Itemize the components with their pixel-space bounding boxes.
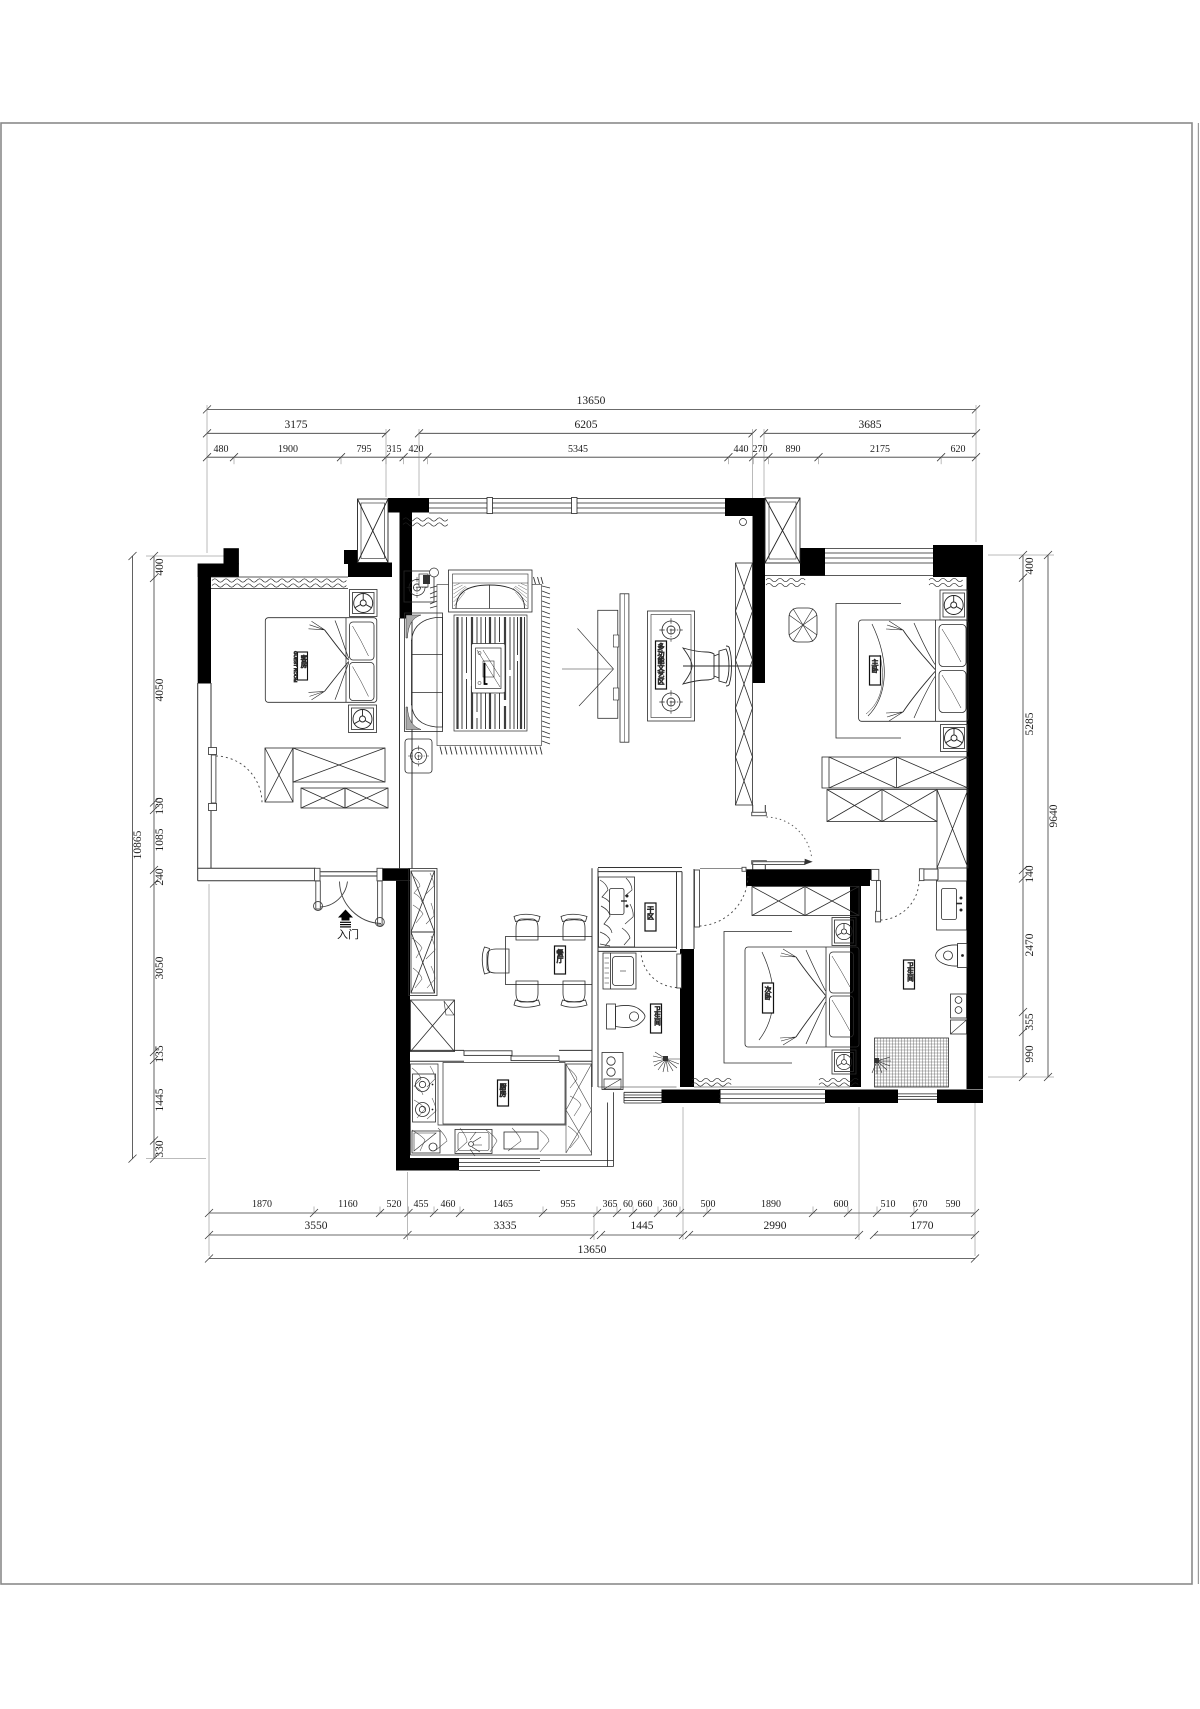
svg-text:670: 670 (913, 1199, 928, 1210)
svg-text:9640: 9640 (1048, 804, 1060, 827)
svg-text:1770: 1770 (911, 1220, 934, 1232)
svg-text:多功能文艺区: 多功能文艺区 (657, 642, 665, 685)
svg-text:5285: 5285 (1024, 712, 1036, 735)
svg-text:2990: 2990 (764, 1220, 787, 1232)
svg-text:3175: 3175 (285, 419, 308, 431)
svg-text:590: 590 (946, 1199, 961, 1210)
svg-text:365: 365 (603, 1199, 618, 1210)
svg-text:460: 460 (441, 1199, 456, 1210)
svg-text:440: 440 (734, 444, 749, 455)
svg-text:4050: 4050 (154, 678, 166, 701)
svg-text:6205: 6205 (575, 419, 598, 431)
svg-text:3685: 3685 (859, 419, 882, 431)
svg-text:400: 400 (1024, 557, 1036, 575)
svg-text:140: 140 (1024, 865, 1036, 883)
svg-text:入门: 入门 (337, 927, 359, 941)
svg-text:955: 955 (561, 1199, 576, 1210)
svg-text:次卧: 次卧 (764, 985, 772, 1001)
svg-text:5345: 5345 (568, 444, 588, 455)
svg-text:315: 315 (387, 444, 402, 455)
svg-text:餐厅: 餐厅 (556, 948, 564, 963)
svg-text:500: 500 (701, 1199, 716, 1210)
svg-text:355: 355 (1024, 1013, 1036, 1031)
svg-text:GUEST ROOM: GUEST ROOM (293, 651, 298, 682)
svg-text:主卧: 主卧 (871, 658, 879, 674)
svg-text:2175: 2175 (870, 444, 890, 455)
svg-text:890: 890 (786, 444, 801, 455)
svg-text:135: 135 (154, 1045, 166, 1063)
svg-text:1445: 1445 (631, 1220, 654, 1232)
svg-text:330: 330 (154, 1140, 166, 1158)
svg-text:3050: 3050 (154, 956, 166, 979)
svg-text:795: 795 (357, 444, 372, 455)
svg-text:660: 660 (638, 1199, 653, 1210)
svg-text:420: 420 (409, 444, 424, 455)
svg-text:1445: 1445 (154, 1088, 166, 1111)
svg-text:厨房: 厨房 (499, 1083, 507, 1098)
svg-text:360: 360 (663, 1199, 678, 1210)
svg-text:240: 240 (154, 868, 166, 886)
svg-text:520: 520 (387, 1199, 402, 1210)
svg-text:13650: 13650 (578, 1244, 607, 1256)
svg-text:400: 400 (154, 558, 166, 576)
svg-text:600: 600 (834, 1199, 849, 1210)
svg-text:510: 510 (881, 1199, 896, 1210)
svg-text:2470: 2470 (1024, 933, 1036, 956)
svg-text:620: 620 (951, 444, 966, 455)
svg-text:3550: 3550 (305, 1220, 328, 1232)
svg-text:270: 270 (753, 444, 768, 455)
svg-text:455: 455 (414, 1199, 429, 1210)
svg-text:130: 130 (154, 797, 166, 815)
svg-text:1890: 1890 (761, 1199, 781, 1210)
svg-text:1870: 1870 (252, 1199, 272, 1210)
svg-text:990: 990 (1024, 1045, 1036, 1063)
svg-text:60: 60 (623, 1199, 633, 1210)
svg-text:480: 480 (214, 444, 229, 455)
svg-text:干区: 干区 (647, 906, 655, 920)
svg-text:3335: 3335 (494, 1220, 517, 1232)
svg-text:1085: 1085 (154, 828, 166, 851)
svg-text:1465: 1465 (493, 1199, 513, 1210)
svg-text:1900: 1900 (278, 444, 298, 455)
svg-text:13650: 13650 (577, 395, 606, 407)
svg-text:1160: 1160 (338, 1199, 358, 1210)
svg-text:10865: 10865 (132, 830, 144, 859)
